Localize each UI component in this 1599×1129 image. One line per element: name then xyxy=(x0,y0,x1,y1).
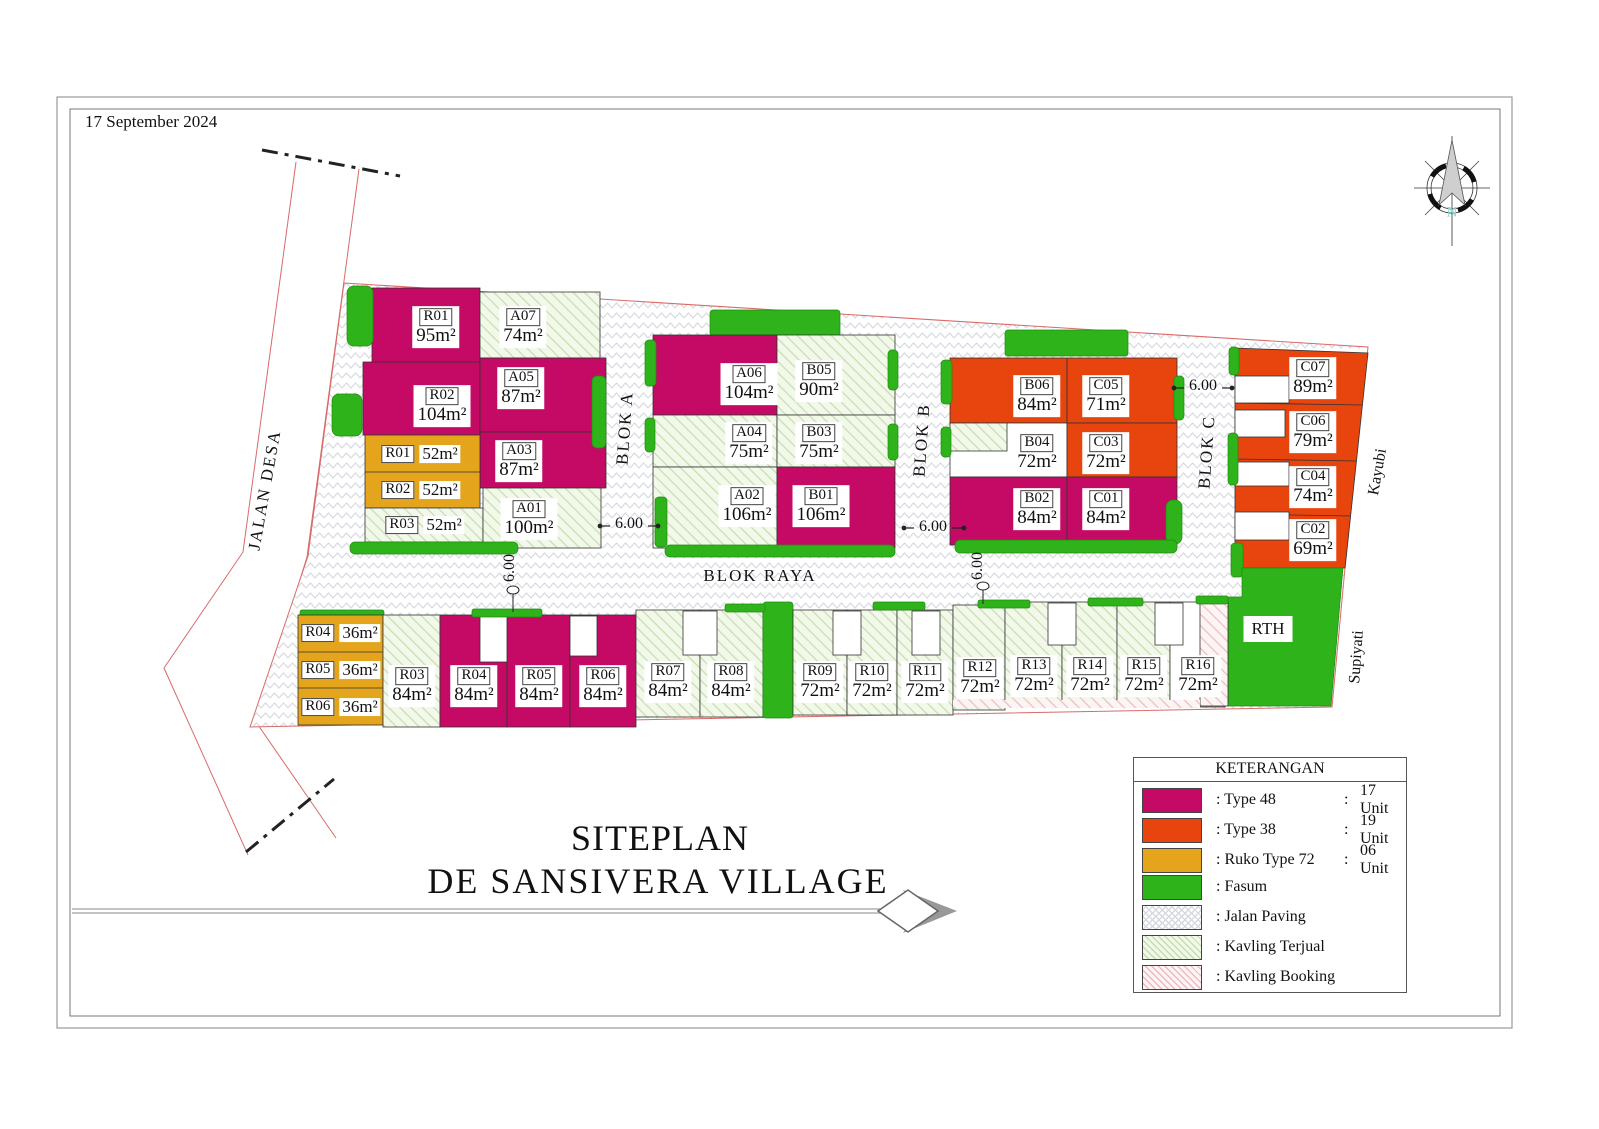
carport xyxy=(1155,603,1183,645)
unit-area: 84m² xyxy=(454,685,493,705)
carport-c02 xyxy=(1235,512,1289,540)
unit-label-c02: C0269m² xyxy=(1289,519,1336,561)
unit-area: 106m² xyxy=(723,505,772,525)
road-label-supiyati: Supiyati xyxy=(1346,630,1368,684)
unit-code: R02 xyxy=(381,481,414,499)
fasum-green xyxy=(592,376,606,448)
plan-title-line1: SITEPLAN xyxy=(571,817,749,859)
fasum-green xyxy=(1088,598,1143,606)
unit-area: 52m² xyxy=(423,516,464,534)
fasum-green xyxy=(888,424,898,460)
unit-area: 69m² xyxy=(1293,539,1332,559)
unit-area: 84m² xyxy=(392,685,431,705)
unit-area: 36m² xyxy=(339,624,380,642)
fasum-green xyxy=(1166,500,1182,544)
unit-label-c01: C0184m² xyxy=(1082,488,1129,530)
legend-row-jalan-paving: : Jalan Paving xyxy=(1134,902,1406,932)
plan-title-line2: DE SANSIVERA VILLAGE xyxy=(427,860,888,902)
unit-area: 71m² xyxy=(1086,395,1125,415)
unit-label-ruko-r01: R0152m² xyxy=(381,445,460,463)
unit-label-r02-house: R02104m² xyxy=(414,385,471,427)
dimension-label: 6.00 xyxy=(1189,377,1217,395)
unit-label-ruko-r04: R0436m² xyxy=(301,624,380,642)
unit-code: C06 xyxy=(1296,413,1329,431)
unit-code: R06 xyxy=(586,667,619,685)
unit-area: 72m² xyxy=(1014,675,1053,695)
unit-code: A02 xyxy=(730,487,764,505)
unit-area: 100m² xyxy=(505,518,554,538)
compass-north-label: N xyxy=(1447,205,1458,222)
unit-code: C07 xyxy=(1296,359,1329,377)
unit-code: R03 xyxy=(385,516,418,534)
unit-label-r10-row: R1072m² xyxy=(848,661,895,703)
unit-label-r03-row: R0384m² xyxy=(388,665,435,707)
unit-code: A01 xyxy=(512,500,546,518)
legend-title: KETERANGAN xyxy=(1134,758,1406,782)
legend-label: : Kavling Booking xyxy=(1216,968,1344,986)
road-centerline-top xyxy=(262,150,400,176)
fasum-green xyxy=(1174,376,1184,420)
unit-label-b02: B0284m² xyxy=(1013,488,1060,530)
unit-code: B05 xyxy=(802,362,835,380)
fasum-green xyxy=(941,360,952,404)
legend-label: : Jalan Paving xyxy=(1216,908,1344,926)
unit-label-b04: B0472m² xyxy=(1013,432,1060,474)
unit-label-r12-row: R1272m² xyxy=(956,657,1003,699)
unit-area: 87m² xyxy=(501,387,540,407)
unit-code: A05 xyxy=(504,369,538,387)
unit-code: B06 xyxy=(1020,377,1053,395)
unit-code: R11 xyxy=(909,663,941,681)
unit-area: 72m² xyxy=(960,677,999,697)
unit-label-r15-row: R1572m² xyxy=(1120,655,1167,697)
legend-count: 06 Unit xyxy=(1360,842,1406,878)
unit-code: B03 xyxy=(802,424,835,442)
unit-area: 52m² xyxy=(419,445,460,463)
unit-label-r04-row: R0484m² xyxy=(450,665,497,707)
unit-label-c06: C0679m² xyxy=(1289,411,1336,453)
legend-label: : Type 38 xyxy=(1216,821,1344,839)
unit-area: 84m² xyxy=(1086,508,1125,528)
unit-area: 36m² xyxy=(339,661,380,679)
unit-code: R04 xyxy=(457,667,490,685)
unit-label-r16-row: R1672m² xyxy=(1174,655,1221,697)
unit-area: 84m² xyxy=(711,681,750,701)
fasum-green xyxy=(888,350,898,390)
cluster-3 xyxy=(941,330,1184,553)
unit-label-ruko-r05: R0536m² xyxy=(301,661,380,679)
fasum-green xyxy=(645,340,656,386)
fasum-green xyxy=(665,545,895,557)
unit-label-ruko-r06: R0636m² xyxy=(301,698,380,716)
legend-label: : Kavling Terjual xyxy=(1216,938,1344,956)
unit-code: R04 xyxy=(301,624,334,642)
legend-swatch-kavling-booking xyxy=(1142,965,1202,990)
legend-row-kavling-terjual: : Kavling Terjual xyxy=(1134,932,1406,962)
unit-code: R03 xyxy=(395,667,428,685)
plot-b04-sold-part xyxy=(950,423,1007,451)
fasum-green xyxy=(873,602,925,610)
unit-label-ruko-r03: R0352m² xyxy=(385,516,464,534)
road-label-blok-raya: BLOK RAYA xyxy=(703,566,816,586)
unit-area: 52m² xyxy=(419,481,460,499)
unit-area: 72m² xyxy=(1178,675,1217,695)
carport-c06 xyxy=(1235,410,1285,437)
unit-code: R16 xyxy=(1181,657,1214,675)
fasum-green xyxy=(955,540,1177,553)
unit-area: 75m² xyxy=(729,442,768,462)
unit-code: R15 xyxy=(1127,657,1160,675)
carport-c04 xyxy=(1235,462,1289,486)
unit-label-r07-row: R0784m² xyxy=(644,661,691,703)
unit-area: 90m² xyxy=(799,380,838,400)
unit-area: 36m² xyxy=(339,698,380,716)
unit-label-a05: A0587m² xyxy=(497,367,544,409)
unit-label-b05: B0590m² xyxy=(795,360,842,402)
unit-code: B01 xyxy=(804,487,837,505)
fasum-green xyxy=(725,604,765,612)
unit-label-a06: A06104m² xyxy=(721,363,778,405)
unit-area: 72m² xyxy=(852,681,891,701)
plan-date: 17 September 2024 xyxy=(85,112,217,132)
legend-label: : Ruko Type 72 xyxy=(1216,851,1344,869)
fasum-green xyxy=(941,427,951,457)
legend-swatch-ruko xyxy=(1142,848,1202,873)
fasum-green xyxy=(1229,347,1239,375)
unit-label-a03: A0387m² xyxy=(495,440,542,482)
dimension-label: 6.00 xyxy=(501,554,519,582)
legend: KETERANGAN : Type 48:17 Unit : Type 38:1… xyxy=(1133,757,1407,993)
unit-label-r05-row: R0584m² xyxy=(515,665,562,707)
unit-label-r09-row: R0972m² xyxy=(796,661,843,703)
fasum-green xyxy=(1228,433,1238,485)
unit-label-b03: B0375m² xyxy=(795,422,842,464)
unit-label-c04: C0474m² xyxy=(1289,466,1336,508)
fasum-green xyxy=(655,497,667,547)
unit-label-a02: A02106m² xyxy=(719,485,776,527)
carport xyxy=(480,616,507,662)
unit-area: 104m² xyxy=(418,405,467,425)
unit-area: 72m² xyxy=(1070,675,1109,695)
unit-code: C04 xyxy=(1296,468,1329,486)
unit-label-r08-row: R0884m² xyxy=(707,661,754,703)
unit-label-c07: C0789m² xyxy=(1289,357,1336,399)
siteplan-page: 17 September 2024 JALAN DESA BLOK A BLOK… xyxy=(0,0,1599,1129)
unit-code: R02 xyxy=(425,387,458,405)
unit-area: 106m² xyxy=(797,505,846,525)
fasum-green xyxy=(1231,543,1243,577)
unit-area: 72m² xyxy=(1017,452,1056,472)
unit-area: 84m² xyxy=(1017,508,1056,528)
unit-label-c05: C0571m² xyxy=(1082,375,1129,417)
unit-code: R01 xyxy=(381,445,414,463)
fasum-green xyxy=(347,286,373,346)
dimension-label: 6.00 xyxy=(919,518,947,536)
unit-label-r14-row: R1472m² xyxy=(1066,655,1113,697)
unit-code: R13 xyxy=(1017,657,1050,675)
unit-code: R05 xyxy=(522,667,555,685)
booking-hatch-strip xyxy=(953,700,1200,708)
unit-label-a07: A0774m² xyxy=(499,306,546,348)
unit-area: 72m² xyxy=(905,681,944,701)
unit-label-b06: B0684m² xyxy=(1013,375,1060,417)
unit-label-b01: B01106m² xyxy=(793,485,850,527)
legend-sep: : xyxy=(1344,851,1360,869)
unit-area: 74m² xyxy=(503,326,542,346)
unit-code: R01 xyxy=(419,308,452,326)
fasum-green xyxy=(710,310,840,336)
unit-code: B02 xyxy=(1020,490,1053,508)
unit-label-r01-house: R0195m² xyxy=(412,306,459,348)
carport xyxy=(683,611,717,655)
unit-label-r06-row: R0684m² xyxy=(579,665,626,707)
legend-swatch-jalan-paving xyxy=(1142,905,1202,930)
rth-label: RTH xyxy=(1244,616,1293,642)
unit-area: 84m² xyxy=(1017,395,1056,415)
unit-area: 84m² xyxy=(583,685,622,705)
unit-area: 95m² xyxy=(416,326,455,346)
unit-code: R12 xyxy=(963,659,996,677)
carport-c07 xyxy=(1235,376,1289,403)
unit-area: 74m² xyxy=(1293,486,1332,506)
carport xyxy=(1048,603,1076,645)
unit-area: 104m² xyxy=(725,383,774,403)
unit-code: R06 xyxy=(301,698,334,716)
legend-swatch-type38 xyxy=(1142,818,1202,843)
legend-swatch-kavling-terjual xyxy=(1142,935,1202,960)
unit-code: R10 xyxy=(855,663,888,681)
unit-area: 84m² xyxy=(519,685,558,705)
legend-sep: : xyxy=(1344,821,1360,839)
fasum-green xyxy=(978,600,1030,608)
carport xyxy=(570,616,597,656)
fasum-green xyxy=(645,418,655,452)
dimension-label: 6.00 xyxy=(615,515,643,533)
unit-code: B04 xyxy=(1020,434,1053,452)
legend-sep: : xyxy=(1344,791,1360,809)
unit-code: R14 xyxy=(1073,657,1106,675)
unit-area: 87m² xyxy=(499,460,538,480)
fasum-green xyxy=(332,394,362,436)
unit-code: C03 xyxy=(1089,434,1122,452)
unit-area: 79m² xyxy=(1293,431,1332,451)
carport xyxy=(833,611,861,655)
fasum-green-strip xyxy=(763,602,793,718)
unit-area: 72m² xyxy=(1124,675,1163,695)
carport xyxy=(912,611,940,655)
unit-area: 84m² xyxy=(648,681,687,701)
unit-code: R08 xyxy=(714,663,747,681)
legend-label: : Type 48 xyxy=(1216,791,1344,809)
legend-row-kavling-booking: : Kavling Booking xyxy=(1134,962,1406,992)
fasum-green xyxy=(350,542,518,554)
unit-label-r11-row: R1172m² xyxy=(901,661,948,703)
unit-code: C01 xyxy=(1089,490,1122,508)
fasum-green xyxy=(472,609,542,617)
compass-icon xyxy=(1414,136,1490,246)
unit-code: R07 xyxy=(651,663,684,681)
unit-label-c03: C0372m² xyxy=(1082,432,1129,474)
legend-row-ruko: : Ruko Type 72:06 Unit xyxy=(1134,842,1406,872)
unit-label-a04: A0475m² xyxy=(725,422,772,464)
unit-code: A07 xyxy=(506,308,540,326)
unit-code: A03 xyxy=(502,442,536,460)
unit-area: 72m² xyxy=(1086,452,1125,472)
fasum-green xyxy=(1196,596,1228,604)
unit-label-a01: A01100m² xyxy=(501,498,558,540)
unit-code: A04 xyxy=(732,424,766,442)
unit-area: 89m² xyxy=(1293,377,1332,397)
unit-code: A06 xyxy=(732,365,766,383)
unit-label-r13-row: R1372m² xyxy=(1010,655,1057,697)
fasum-green xyxy=(1005,330,1128,356)
unit-code: C05 xyxy=(1089,377,1122,395)
unit-code: R09 xyxy=(803,663,836,681)
unit-label-ruko-r02: R0252m² xyxy=(381,481,460,499)
dimension-label: 6.00 xyxy=(969,552,987,580)
legend-row-type38: : Type 38:19 Unit xyxy=(1134,812,1406,842)
legend-label: : Fasum xyxy=(1216,878,1344,896)
legend-swatch-type48 xyxy=(1142,788,1202,813)
unit-code: C02 xyxy=(1296,521,1329,539)
legend-row-type48: : Type 48:17 Unit xyxy=(1134,782,1406,812)
unit-area: 75m² xyxy=(799,442,838,462)
legend-swatch-fasum xyxy=(1142,875,1202,900)
unit-code: R05 xyxy=(301,661,334,679)
unit-area: 72m² xyxy=(800,681,839,701)
